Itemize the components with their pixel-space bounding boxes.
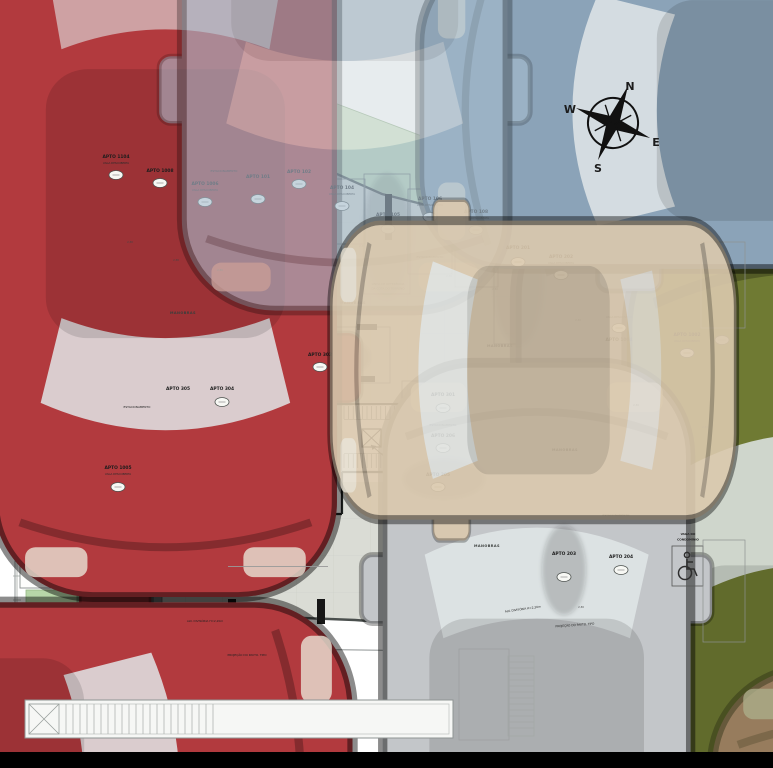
label-apto-1005: APTO 1005 (104, 465, 131, 471)
label-apto-1104: APTO 1104 (102, 154, 129, 160)
bottom-black-band (0, 752, 773, 768)
label-apto-203: APTO 203 (552, 551, 576, 557)
label-apto-305: APTO 305 (166, 386, 190, 392)
floor-plan-drawing: LINHA DE REFERÊNCIA DE COTA DO TERRENO L… (0, 0, 773, 768)
dim-2: 2,30 (173, 258, 179, 262)
compass-letter-w: W (564, 103, 576, 116)
compass-letter-s: S (594, 162, 602, 175)
note-projecao-1: PROJEÇÃO DO PAVTO. TIPO (228, 652, 268, 657)
manobras-1: MANOBRAS (170, 311, 196, 315)
sub-apto-1104: VAGA DESCOBERTA (103, 161, 129, 165)
compass-letter-e: E (652, 136, 660, 149)
car-bottom-strip (330, 200, 737, 541)
manobras-5: MANOBRAS (474, 544, 500, 548)
vaga-condominio-label-1: VAGA DO (681, 532, 696, 536)
label-apto-1008: APTO 1008 (146, 168, 173, 174)
compass-letter-n: N (625, 80, 634, 93)
dim-10: 2,30 (578, 605, 584, 609)
label-apto-304: APTO 304 (210, 386, 234, 392)
estacionamento-305: ESTACIONAMENTO (124, 405, 152, 409)
sub-apto-1005: VAGA DESCOBERTA (105, 472, 131, 476)
label-apto-204: APTO 204 (609, 554, 633, 560)
vaga-condominio-label-2: CONDOMÍNIO (677, 537, 699, 542)
dim-1: 2,30 (127, 240, 133, 244)
illegible-note-mid (228, 566, 328, 567)
floor-plan-sheet: LINHA DE REFERÊNCIA DE COTA DO TERRENO L… (0, 0, 773, 768)
note-divisoria-1: ALV. DIVISÓRIA H=2,20m (187, 618, 224, 623)
